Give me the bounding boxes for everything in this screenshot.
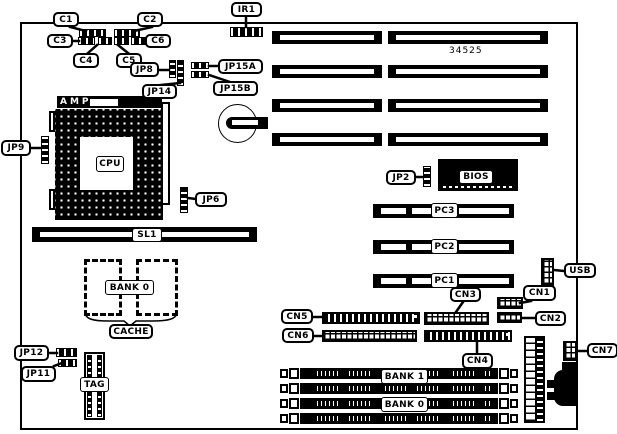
jp9-label: JP9 <box>1 140 31 156</box>
cache-bank0-label: BANK 0 <box>105 280 154 295</box>
jp8-label: JP8 <box>130 62 159 77</box>
cn6-label: CN6 <box>282 328 314 343</box>
pc1-label: PC1 <box>431 273 458 288</box>
callout-usb <box>554 270 564 271</box>
pc3-label: PC3 <box>431 203 458 218</box>
cn2-label: CN2 <box>535 311 566 326</box>
callout-cn3 <box>456 302 463 312</box>
jp12-label: JP12 <box>14 345 49 361</box>
callout-jp11 <box>54 363 62 366</box>
jp6-label: JP6 <box>195 192 227 207</box>
c4-label: C4 <box>73 53 99 68</box>
usb-label: USB <box>564 263 596 278</box>
motherboard-diagram: 34525 AMP CPU BIOS SL1 <box>0 0 617 434</box>
sl1-label: SL1 <box>132 228 162 242</box>
pc2-label: PC2 <box>431 239 458 254</box>
callout-c1 <box>70 27 86 31</box>
jp2-label: JP2 <box>386 170 416 185</box>
jp15b-label: JP15B <box>213 81 258 96</box>
callout-c5 <box>118 45 128 53</box>
c6-label: C6 <box>145 34 171 48</box>
jp14-label: JP14 <box>142 84 177 99</box>
cpu-label: CPU <box>96 156 124 172</box>
cn1-label: CN1 <box>523 285 556 301</box>
cache-label: CACHE <box>109 324 153 339</box>
bank1-label: BANK 1 <box>381 369 428 384</box>
bank0-label: BANK 0 <box>381 397 428 412</box>
c3-label: C3 <box>47 34 73 48</box>
c1-label: C1 <box>53 12 79 27</box>
callout-cn1 <box>520 301 531 303</box>
jp15a-label: JP15A <box>218 59 263 74</box>
cn5-label: CN5 <box>281 309 313 324</box>
tag-label: TAG <box>80 377 109 392</box>
callout-c4 <box>88 45 97 53</box>
jp11-label: JP11 <box>21 366 56 382</box>
cn3-label: CN3 <box>450 287 481 302</box>
cn7-label: CN7 <box>587 343 617 358</box>
callout-c2 <box>134 27 152 31</box>
ir1-label: IR1 <box>231 2 262 17</box>
c2-label: C2 <box>137 12 163 27</box>
cn4-label: CN4 <box>462 353 493 369</box>
